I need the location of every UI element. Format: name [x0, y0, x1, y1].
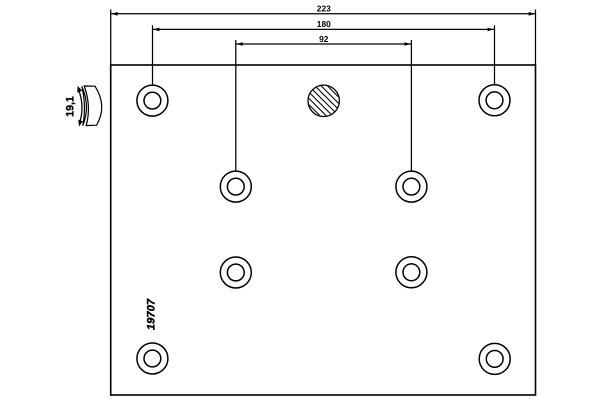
svg-text:223: 223	[317, 4, 331, 14]
svg-text:92: 92	[319, 34, 329, 44]
svg-text:180: 180	[317, 19, 331, 29]
svg-text:19707: 19707	[145, 298, 157, 330]
svg-text:19,1: 19,1	[65, 96, 77, 117]
